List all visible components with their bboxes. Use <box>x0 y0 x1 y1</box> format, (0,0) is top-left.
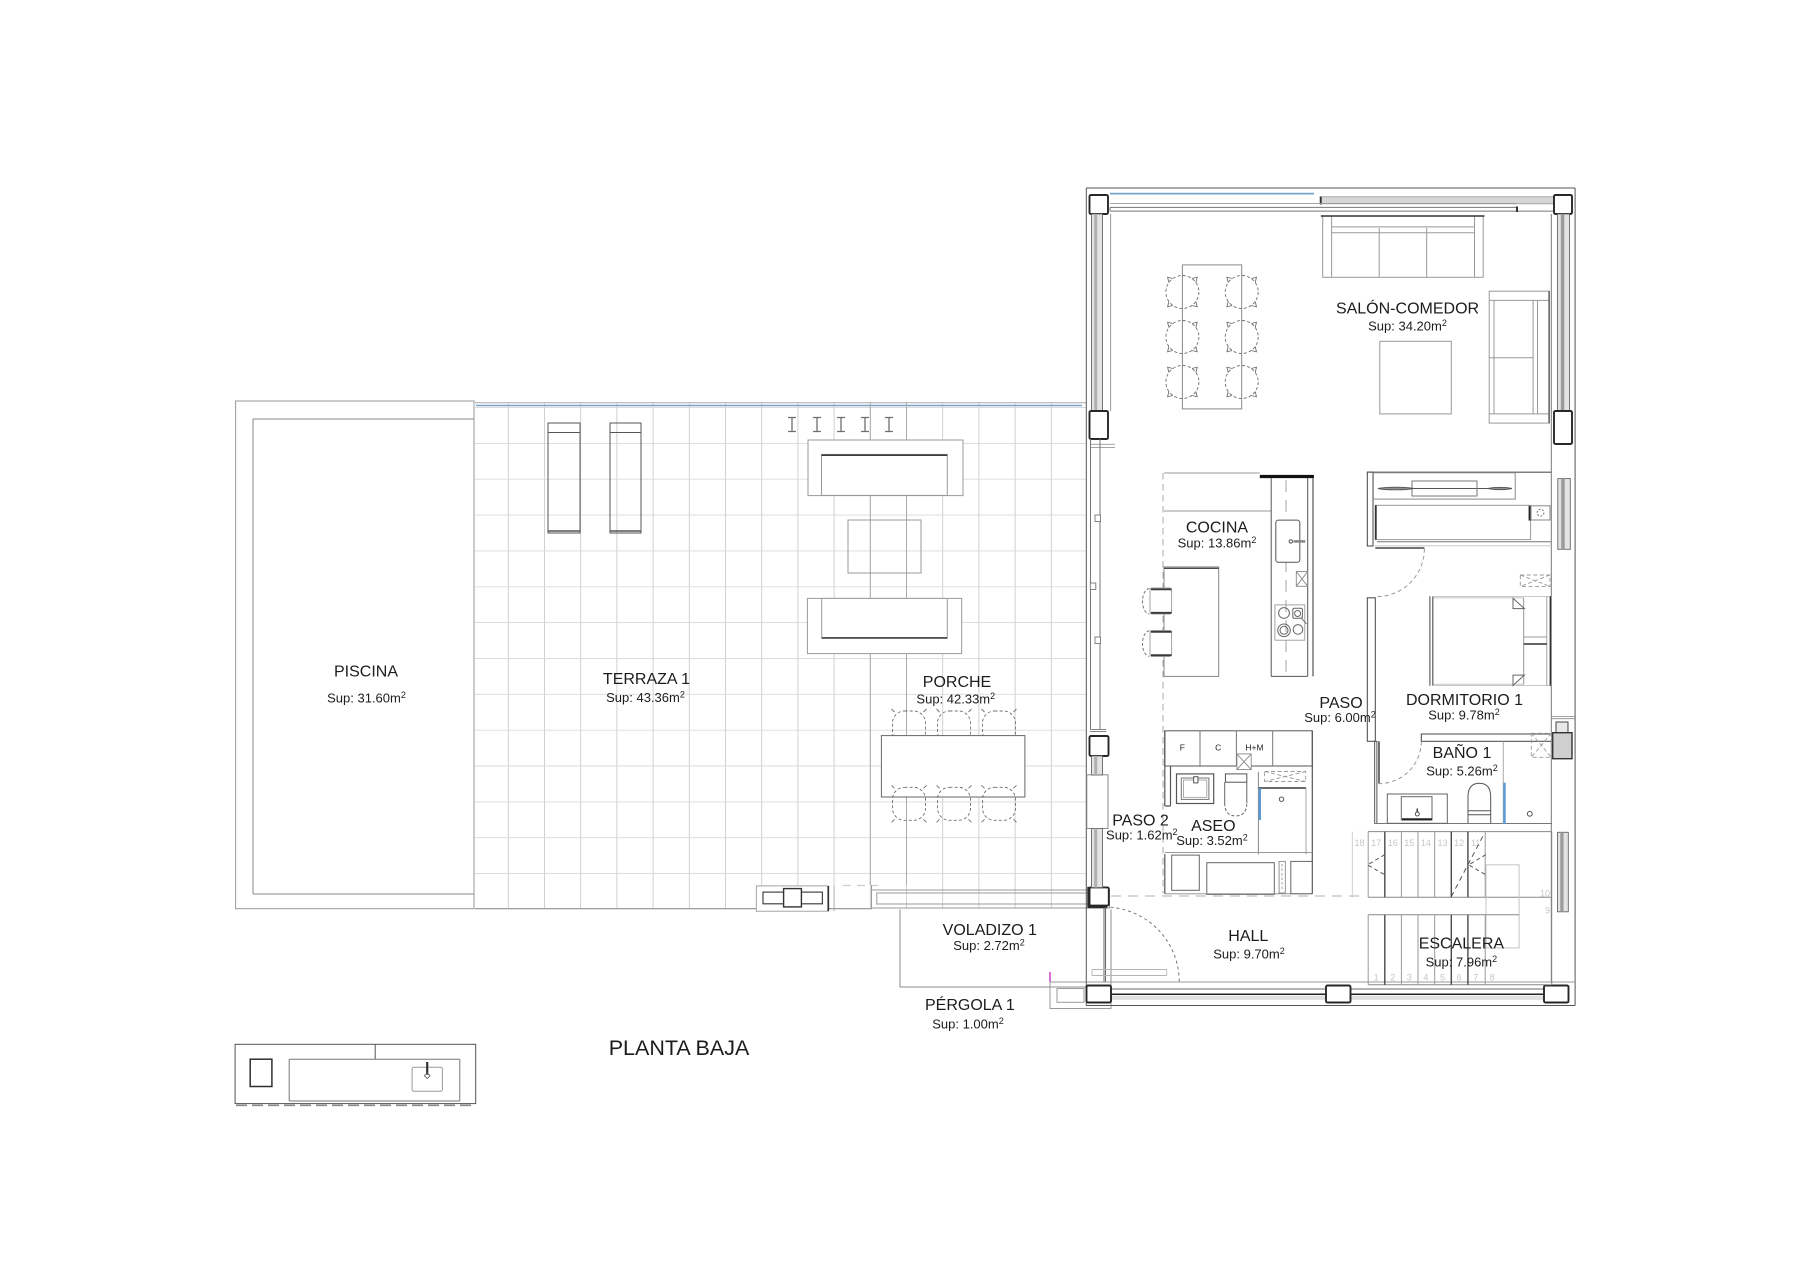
svg-text:Sup: 31.60m2: Sup: 31.60m2 <box>327 690 406 706</box>
svg-text:DORMITORIO 1: DORMITORIO 1 <box>1406 692 1523 709</box>
svg-text:8: 8 <box>1490 973 1495 983</box>
svg-text:PISCINA: PISCINA <box>334 664 398 681</box>
svg-text:Sup: 43.36m2: Sup: 43.36m2 <box>606 690 685 706</box>
svg-text:Sup: 9.78m2: Sup: 9.78m2 <box>1428 707 1500 723</box>
svg-text:3: 3 <box>1407 973 1412 983</box>
svg-text:7: 7 <box>1473 973 1478 983</box>
svg-text:9: 9 <box>1545 906 1550 916</box>
svg-text:Sup: 9.70m2: Sup: 9.70m2 <box>1213 946 1285 962</box>
svg-text:1: 1 <box>1374 973 1379 983</box>
svg-text:Sup: 6.00m2: Sup: 6.00m2 <box>1304 709 1376 725</box>
svg-text:16: 16 <box>1388 838 1398 848</box>
svg-text:6: 6 <box>1457 973 1462 983</box>
svg-text:COCINA: COCINA <box>1186 520 1249 537</box>
svg-text:11: 11 <box>1471 838 1480 848</box>
svg-text:TERRAZA 1: TERRAZA 1 <box>603 671 690 688</box>
svg-text:Sup: 2.72m2: Sup: 2.72m2 <box>953 937 1025 953</box>
svg-text:ESCALERA: ESCALERA <box>1419 935 1505 952</box>
svg-text:Sup: 7.96m2: Sup: 7.96m2 <box>1426 954 1498 970</box>
svg-text:PÉRGOLA 1: PÉRGOLA 1 <box>925 995 1015 1014</box>
svg-text:Sup: 1.00m2: Sup: 1.00m2 <box>932 1016 1004 1032</box>
svg-text:12: 12 <box>1454 838 1464 848</box>
svg-text:18: 18 <box>1354 838 1364 848</box>
svg-text:13: 13 <box>1437 838 1447 848</box>
svg-text:PLANTA BAJA: PLANTA BAJA <box>609 1036 750 1060</box>
svg-text:Sup: 34.20m2: Sup: 34.20m2 <box>1368 318 1447 334</box>
svg-text:10: 10 <box>1540 889 1550 899</box>
svg-text:17: 17 <box>1371 838 1381 848</box>
svg-text:SALÓN-COMEDOR: SALÓN-COMEDOR <box>1336 299 1479 318</box>
svg-text:F: F <box>1180 743 1185 753</box>
svg-text:PORCHE: PORCHE <box>923 674 991 691</box>
svg-text:Sup: 13.86m2: Sup: 13.86m2 <box>1178 535 1257 551</box>
svg-text:Sup: 42.33m2: Sup: 42.33m2 <box>916 691 995 707</box>
svg-text:5: 5 <box>1440 973 1445 983</box>
svg-text:Sup: 3.52m2: Sup: 3.52m2 <box>1176 833 1248 849</box>
svg-text:14: 14 <box>1421 838 1431 848</box>
svg-text:H+M: H+M <box>1245 743 1263 753</box>
svg-text:Sup: 1.62m2: Sup: 1.62m2 <box>1106 827 1178 843</box>
svg-text:Sup: 5.26m2: Sup: 5.26m2 <box>1426 763 1498 779</box>
svg-text:BAÑO 1: BAÑO 1 <box>1433 742 1492 762</box>
svg-text:15: 15 <box>1404 838 1414 848</box>
svg-text:4: 4 <box>1423 973 1428 983</box>
svg-text:C: C <box>1215 743 1221 753</box>
svg-text:HALL: HALL <box>1228 928 1268 945</box>
svg-text:2: 2 <box>1390 973 1395 983</box>
